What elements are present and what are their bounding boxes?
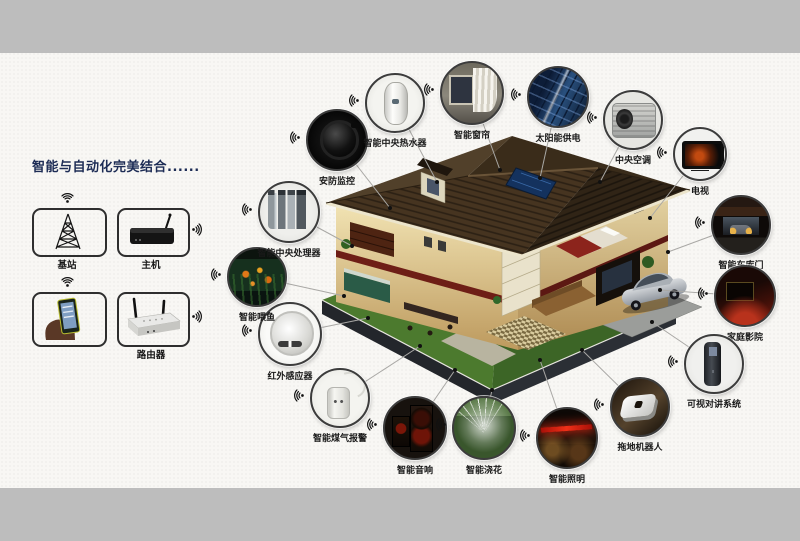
device-label: 智能浇花: [466, 463, 502, 476]
wifi-signal-icon: [344, 92, 361, 109]
gas-alarm-photo: [310, 368, 370, 428]
wifi-signal-icon: [206, 266, 223, 283]
home-theater-photo: [714, 265, 776, 327]
lit-room-photo: [536, 407, 598, 469]
garage-photo: [711, 195, 771, 255]
water-heater-photo: [365, 73, 425, 133]
device-label: 可视对讲系统: [687, 397, 741, 410]
wifi-signal-icon: [362, 416, 379, 433]
controller-modules-photo: [258, 181, 320, 243]
device-label: 安防监控: [319, 174, 355, 187]
door-intercom-photo: [684, 334, 744, 394]
wifi-signal-icon: [652, 144, 669, 161]
device-label: 智能照明: [549, 472, 585, 485]
device-label: 智能中央热水器: [363, 136, 426, 149]
device-node-security-camera: 安防监控: [306, 109, 368, 171]
solar-panels-photo: [527, 66, 589, 128]
device-node-solar-power: 太阳能供电: [527, 66, 589, 128]
wifi-signal-icon: [237, 322, 254, 339]
wifi-signal-icon: [431, 416, 448, 433]
device-nodes: 安防监控智能中央热水器智能窗帘太阳能供电中央空调电视智能车库门家庭影院可视对讲系…: [0, 0, 800, 541]
wifi-signal-icon: [582, 109, 599, 126]
device-label: 电视: [691, 184, 709, 197]
wifi-signal-icon: [693, 285, 710, 302]
wifi-signal-icon: [506, 86, 523, 103]
wifi-signal-icon: [289, 387, 306, 404]
wifi-signal-icon: [589, 396, 606, 413]
mopping-robot-photo: [610, 377, 670, 437]
signal-tower-icon: [48, 210, 88, 251]
page-title: 智能与自动化完美结合......: [32, 156, 200, 175]
device-label: 智能音响: [397, 463, 433, 476]
wifi-signal-icon: [59, 188, 76, 205]
wifi-signal-icon: [690, 214, 707, 231]
device-node-lighting: 智能照明: [536, 407, 598, 469]
device-node-garage-door: 智能车库门: [711, 195, 771, 255]
dome-camera-photo: [306, 109, 368, 171]
hand-holding-phone-icon: [38, 294, 98, 341]
device-node-central-ac: 中央空调: [603, 90, 663, 150]
wifi-signal-icon: [515, 427, 532, 444]
device-node-water-heater: 智能中央热水器: [365, 73, 425, 133]
device-label: 中央空调: [615, 153, 651, 166]
hub-label-base-station: 基站: [57, 257, 76, 271]
hub-label-host: 主机: [141, 257, 160, 271]
device-node-gas-alarm: 智能煤气报警: [310, 368, 370, 428]
device-node-home-theater: 家庭影院: [714, 265, 776, 327]
ac-outdoor-unit-photo: [603, 90, 663, 150]
device-label: 太阳能供电: [535, 131, 580, 144]
wifi-signal-icon: [663, 353, 680, 370]
wifi-signal-icon: [190, 221, 207, 238]
wifi-signal-icon: [190, 308, 207, 325]
device-node-curtain: 智能窗帘: [440, 61, 504, 125]
device-node-watering: 智能浇花: [452, 396, 516, 460]
device-label: 智能中央处理器: [257, 246, 320, 259]
device-node-tv: 电视: [673, 127, 727, 181]
television-photo: [673, 127, 727, 181]
host-box-icon: [122, 210, 182, 250]
device-label: 智能煤气报警: [313, 431, 367, 444]
wifi-signal-icon: [237, 201, 254, 218]
curtains-photo: [440, 61, 504, 125]
smart-home-infographic: 安防监控智能中央热水器智能窗帘太阳能供电中央空调电视智能车库门家庭影院可视对讲系…: [0, 0, 800, 541]
wifi-signal-icon: [59, 272, 76, 289]
device-label: 智能窗帘: [454, 128, 490, 141]
hub-label-router: 路由器: [137, 347, 166, 361]
wireless-router-icon: [120, 294, 184, 341]
device-node-cpu: 智能中央处理器: [258, 181, 320, 243]
device-label: 拖地机器人: [617, 440, 662, 453]
wifi-signal-icon: [285, 129, 302, 146]
device-node-video-intercom: 可视对讲系统: [684, 334, 744, 394]
bottom-gray-band: [0, 488, 800, 541]
lawn-sprinkler-photo: [452, 396, 516, 460]
device-node-mop-robot: 拖地机器人: [610, 377, 670, 437]
device-label: 红外感应器: [267, 369, 312, 382]
top-gray-band: [0, 0, 800, 53]
wifi-signal-icon: [419, 81, 436, 98]
